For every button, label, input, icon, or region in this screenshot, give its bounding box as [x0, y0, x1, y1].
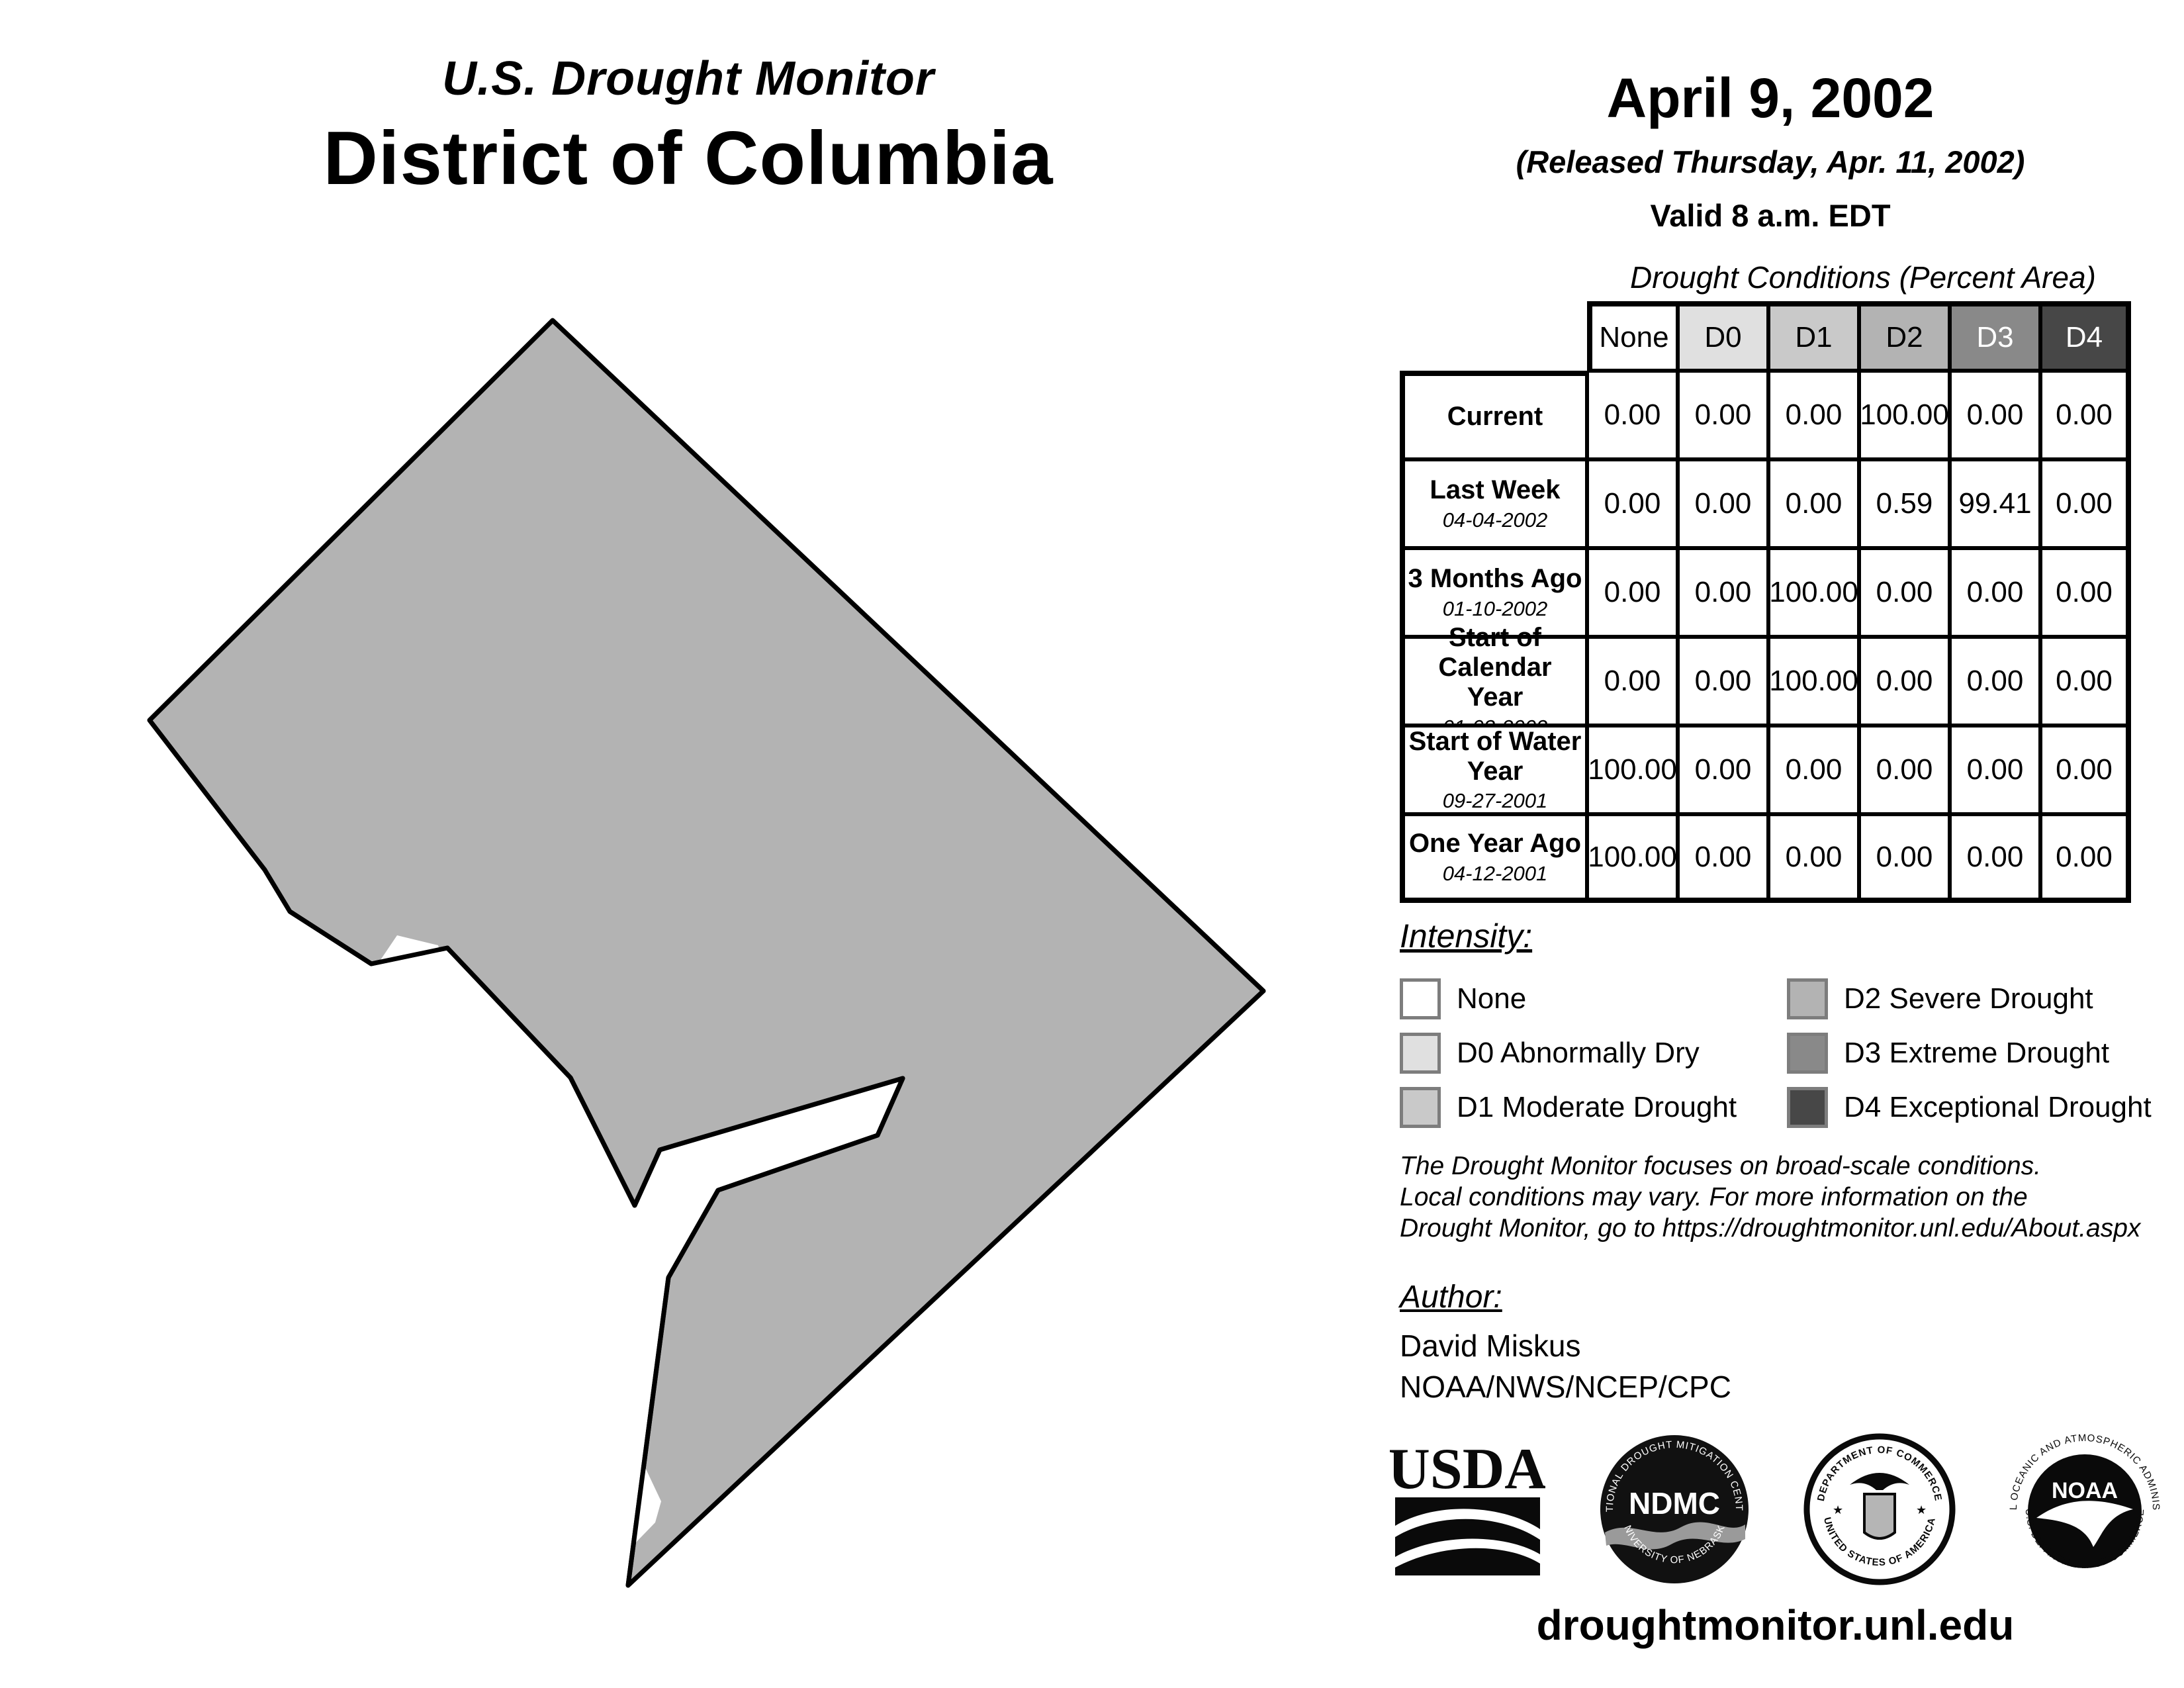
col-header-d0: D0	[1678, 301, 1768, 371]
cell-current-d1: 0.00	[1768, 371, 1859, 459]
row-label-start-water-year: Start of Water Year 09-27-2001	[1400, 726, 1587, 814]
author-org: NOAA/NWS/NCEP/CPC	[1400, 1369, 1731, 1405]
col-header-none: None	[1587, 301, 1678, 371]
drought-conditions-table: None D0 D1 D2 D3 D4 Current 0.00 0.00 0.…	[1400, 301, 2131, 903]
noaa-logo: NATIONAL OCEANIC AND ATMOSPHERIC ADMINIS…	[2009, 1433, 2161, 1585]
row-label-start-calendar-year: Start of Calendar Year 01-03-2002	[1400, 637, 1587, 726]
cell-lastweek-d4: 0.00	[2040, 459, 2131, 548]
legend-item-d1: D1 Moderate Drought	[1400, 1087, 1787, 1128]
cell-lastweek-d0: 0.00	[1678, 459, 1768, 548]
cell-swy-none: 100.00	[1587, 726, 1678, 814]
row-label-text: Current	[1447, 402, 1543, 432]
commerce-logo: DEPARTMENT OF COMMERCE ★ ★ UNITED STATES…	[1803, 1433, 1956, 1585]
cell-scy-d1: 100.00	[1768, 637, 1859, 726]
cell-1yr-d2: 0.00	[1859, 814, 1950, 903]
disclaimer-line3: Drought Monitor, go to https://droughtmo…	[1400, 1213, 2174, 1244]
cell-current-d2: 100.00	[1859, 371, 1950, 459]
cell-3mo-d3: 0.00	[1950, 548, 2040, 637]
cell-swy-d4: 0.00	[2040, 726, 2131, 814]
legend-item-d3: D3 Extreme Drought	[1787, 1033, 2174, 1074]
cell-swy-d3: 0.00	[1950, 726, 2040, 814]
cell-3mo-d0: 0.00	[1678, 548, 1768, 637]
cell-current-none: 0.00	[1587, 371, 1678, 459]
row-label-text: Last Week	[1430, 475, 1560, 505]
row-label-current: Current	[1400, 371, 1587, 459]
cell-current-d0: 0.00	[1678, 371, 1768, 459]
intensity-heading: Intensity:	[1400, 917, 1532, 955]
cell-current-d4: 0.00	[2040, 371, 2131, 459]
cell-1yr-d1: 0.00	[1768, 814, 1859, 903]
legend-label: D1 Moderate Drought	[1457, 1091, 1737, 1124]
drought-monitor-report: U.S. Drought Monitor District of Columbi…	[0, 0, 2184, 1688]
cell-scy-d4: 0.00	[2040, 637, 2131, 726]
cell-1yr-d0: 0.00	[1678, 814, 1768, 903]
row-label-date: 04-04-2002	[1443, 509, 1548, 532]
cell-swy-d1: 0.00	[1768, 726, 1859, 814]
author-name: David Miskus	[1400, 1328, 1581, 1364]
col-header-d2: D2	[1859, 301, 1950, 371]
legend-label: D3 Extreme Drought	[1844, 1037, 2109, 1070]
cell-scy-none: 0.00	[1587, 637, 1678, 726]
usda-logo-text: USDA	[1390, 1437, 1545, 1501]
author-heading: Author:	[1400, 1279, 1502, 1315]
legend-label: D4 Exceptional Drought	[1844, 1091, 2152, 1124]
cell-3mo-none: 0.00	[1587, 548, 1678, 637]
footer-url: droughtmonitor.unl.edu	[1390, 1601, 2161, 1650]
legend-swatch-d0	[1400, 1033, 1441, 1074]
cell-scy-d0: 0.00	[1678, 637, 1768, 726]
legend-swatch-none	[1400, 978, 1441, 1019]
row-label-date: 04-12-2001	[1443, 863, 1548, 886]
cell-swy-d0: 0.00	[1678, 726, 1768, 814]
legend-item-none: None	[1400, 978, 1787, 1019]
cell-3mo-d4: 0.00	[2040, 548, 2131, 637]
disclaimer-text: The Drought Monitor focuses on broad-sca…	[1400, 1150, 2174, 1244]
cell-scy-d2: 0.00	[1859, 637, 1950, 726]
legend-item-d2: D2 Severe Drought	[1787, 978, 2174, 1019]
disclaimer-line1: The Drought Monitor focuses on broad-sca…	[1400, 1150, 2174, 1182]
disclaimer-line2: Local conditions may vary. For more info…	[1400, 1182, 2174, 1213]
legend-swatch-d3	[1787, 1033, 1828, 1074]
agency-logos: USDA NATIONAL DROUGHT MITIGATION CENTER …	[1390, 1430, 2161, 1589]
cell-scy-d3: 0.00	[1950, 637, 2040, 726]
cell-1yr-d4: 0.00	[2040, 814, 2131, 903]
col-header-d4: D4	[2040, 301, 2131, 371]
legend-swatch-d2	[1787, 978, 1828, 1019]
cell-lastweek-d2: 0.59	[1859, 459, 1950, 548]
row-label-date: 01-10-2002	[1443, 598, 1548, 621]
usda-logo: USDA	[1390, 1436, 1545, 1582]
commerce-star-left: ★	[1833, 1503, 1843, 1517]
row-label-text: One Year Ago	[1409, 829, 1581, 859]
legend-label: D0 Abnormally Dry	[1457, 1037, 1700, 1070]
cell-3mo-d1: 100.00	[1768, 548, 1859, 637]
cell-1yr-none: 100.00	[1587, 814, 1678, 903]
intensity-legend: None D2 Severe Drought D0 Abnormally Dry…	[1400, 972, 2161, 1135]
commerce-shield	[1864, 1494, 1895, 1538]
table-title: Drought Conditions (Percent Area)	[1542, 259, 2184, 295]
commerce-star-right: ★	[1916, 1503, 1927, 1517]
dc-boundary-fill	[150, 320, 1263, 1585]
table-corner-cell	[1400, 301, 1587, 371]
cell-lastweek-none: 0.00	[1587, 459, 1678, 548]
cell-1yr-d3: 0.00	[1950, 814, 2040, 903]
row-label-text: 3 Months Ago	[1408, 564, 1582, 594]
cell-lastweek-d1: 0.00	[1768, 459, 1859, 548]
cell-swy-d2: 0.00	[1859, 726, 1950, 814]
row-label-text: Start of Calendar Year	[1408, 623, 1582, 712]
row-label-text: Start of Water Year	[1408, 727, 1582, 786]
legend-swatch-d4	[1787, 1087, 1828, 1128]
noaa-center-text: NOAA	[2052, 1478, 2118, 1503]
cell-lastweek-d3: 99.41	[1950, 459, 2040, 548]
cell-current-d3: 0.00	[1950, 371, 2040, 459]
legend-swatch-d1	[1400, 1087, 1441, 1128]
row-label-date: 09-27-2001	[1443, 790, 1548, 813]
legend-row: D1 Moderate Drought D4 Exceptional Droug…	[1400, 1080, 2161, 1135]
ndmc-center-text: NDMC	[1629, 1486, 1720, 1521]
legend-label: D2 Severe Drought	[1844, 982, 2093, 1015]
legend-label: None	[1457, 982, 1526, 1015]
ndmc-logo: NATIONAL DROUGHT MITIGATION CENTER NDMC …	[1598, 1433, 1751, 1585]
col-header-d1: D1	[1768, 301, 1859, 371]
legend-row: None D2 Severe Drought	[1400, 972, 2161, 1026]
row-label-one-year-ago: One Year Ago 04-12-2001	[1400, 814, 1587, 903]
legend-row: D0 Abnormally Dry D3 Extreme Drought	[1400, 1026, 2161, 1080]
legend-item-d0: D0 Abnormally Dry	[1400, 1033, 1787, 1074]
cell-3mo-d2: 0.00	[1859, 548, 1950, 637]
row-label-last-week: Last Week 04-04-2002	[1400, 459, 1587, 548]
legend-item-d4: D4 Exceptional Drought	[1787, 1087, 2174, 1128]
col-header-d3: D3	[1950, 301, 2040, 371]
